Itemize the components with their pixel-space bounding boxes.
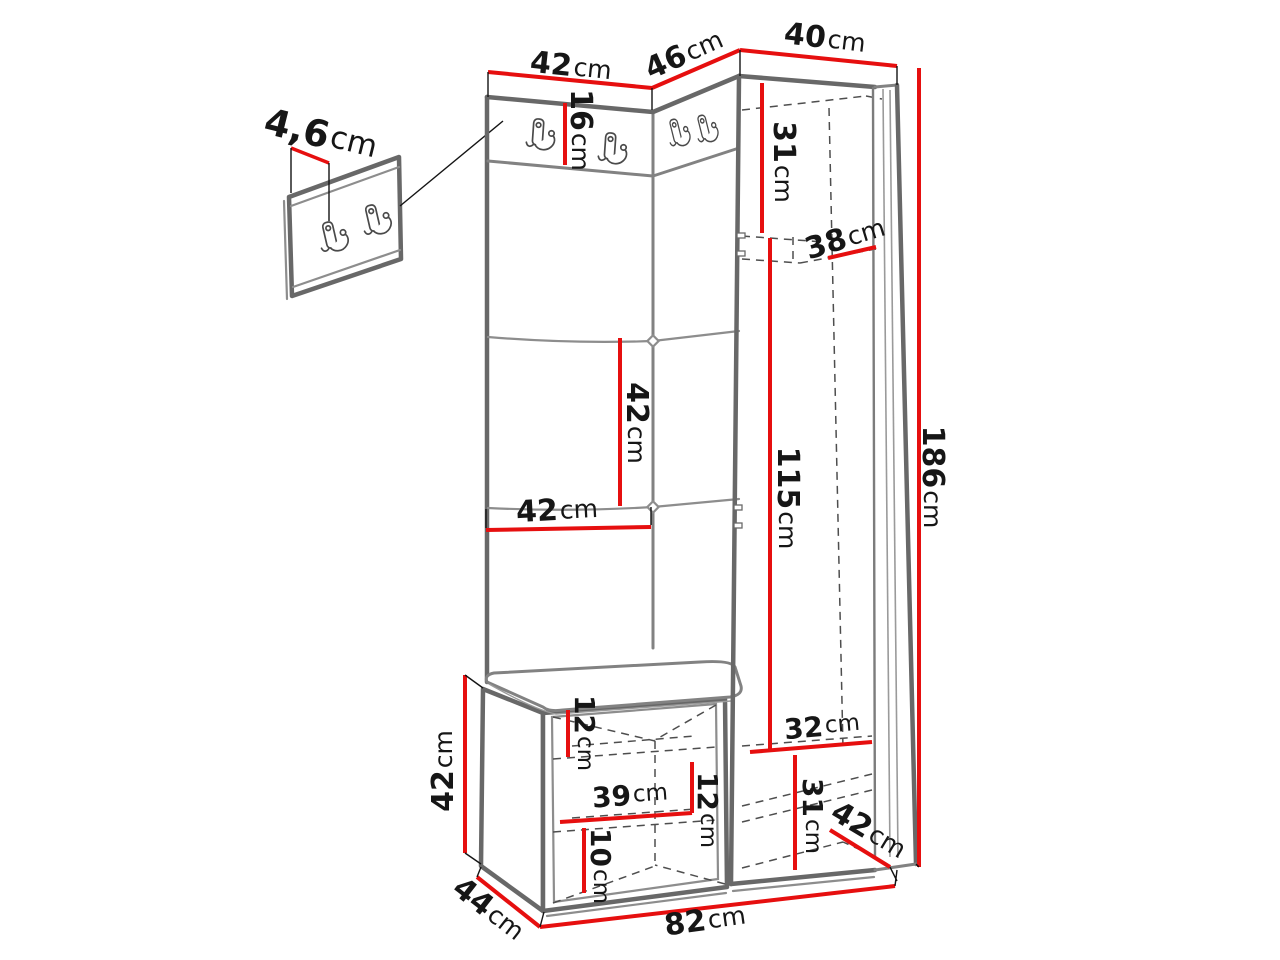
wardrobe-left-edge: [731, 76, 739, 884]
dim-label-bench-shelf-spacing: 12cm: [692, 772, 725, 848]
extension-line: [477, 867, 481, 877]
wall-panel-edge-line: [284, 201, 287, 299]
seam-button: [647, 335, 658, 346]
dim-label-width-corner: 46cm: [639, 21, 728, 86]
dim-label-hanging-height: 115cm: [771, 447, 806, 550]
corner-rail-bottom-edge: [653, 148, 739, 176]
dim-label-total-width: 82cm: [662, 897, 748, 943]
wardrobe-bottom-edge: [731, 870, 875, 884]
hinge-icon: [734, 523, 742, 528]
dim-label-wardrobe-top-height: 31cm: [767, 121, 802, 203]
wardrobe-bottom-side-edge: [875, 864, 916, 870]
dim-label-bench-opening-bottom: 10cm: [585, 828, 618, 904]
hidden-line: [829, 108, 843, 748]
dim-label-hook-panel-height: 16cm: [564, 89, 599, 171]
extension-line: [465, 853, 481, 864]
dim-label-wardrobe-inner-width: 38cm: [801, 209, 890, 266]
dim-label-bench-opening-top: 12cm: [569, 695, 602, 771]
dim-label-lower-width: 32cm: [783, 706, 862, 746]
hinge-icon: [737, 233, 745, 238]
panel-seam: [488, 337, 653, 342]
wardrobe-side-line: [883, 89, 890, 857]
coat-hook-icon: [526, 118, 556, 150]
diagram-canvas: 4,6cm 42cm 46cm 40cm 16cm 31cm 38cm 42cm…: [0, 0, 1280, 960]
coat-hook-icon: [665, 116, 692, 148]
wardrobe-outer-right-edge: [897, 85, 916, 864]
coat-hook-icon: [598, 132, 628, 164]
seam-button: [647, 501, 658, 512]
dim-label-panel-height: 42cm: [620, 382, 655, 464]
wardrobe-top-edge: [739, 76, 875, 87]
wardrobe-top-side-edge: [875, 85, 897, 87]
wardrobe-door-edge: [873, 88, 875, 858]
hidden-line: [742, 842, 843, 868]
panel-seam: [653, 331, 739, 341]
dim-label-bench-height: 42cm: [426, 730, 461, 812]
dimension-line-panel-width: [486, 527, 651, 530]
hinge-icon: [734, 505, 742, 510]
upholstered-wall: [487, 76, 739, 682]
bench-side-face: [481, 689, 543, 911]
wardrobe-side-line: [890, 90, 898, 858]
extension-line: [465, 675, 483, 688]
coat-hook-icon: [693, 112, 720, 144]
panel-seam: [653, 499, 739, 507]
dim-label-total-height: 186cm: [916, 426, 951, 529]
hinge-icon: [737, 251, 745, 256]
wardrobe: [731, 76, 916, 891]
furniture-dimension-drawing: 4,6cm 42cm 46cm 40cm 16cm 31cm 38cm 42cm…: [0, 0, 1280, 960]
dim-label-lower-height: 31cm: [797, 778, 830, 854]
wall-hook-panel-detail: [284, 157, 401, 299]
dim-label-panel-width: 42cm: [515, 490, 599, 529]
